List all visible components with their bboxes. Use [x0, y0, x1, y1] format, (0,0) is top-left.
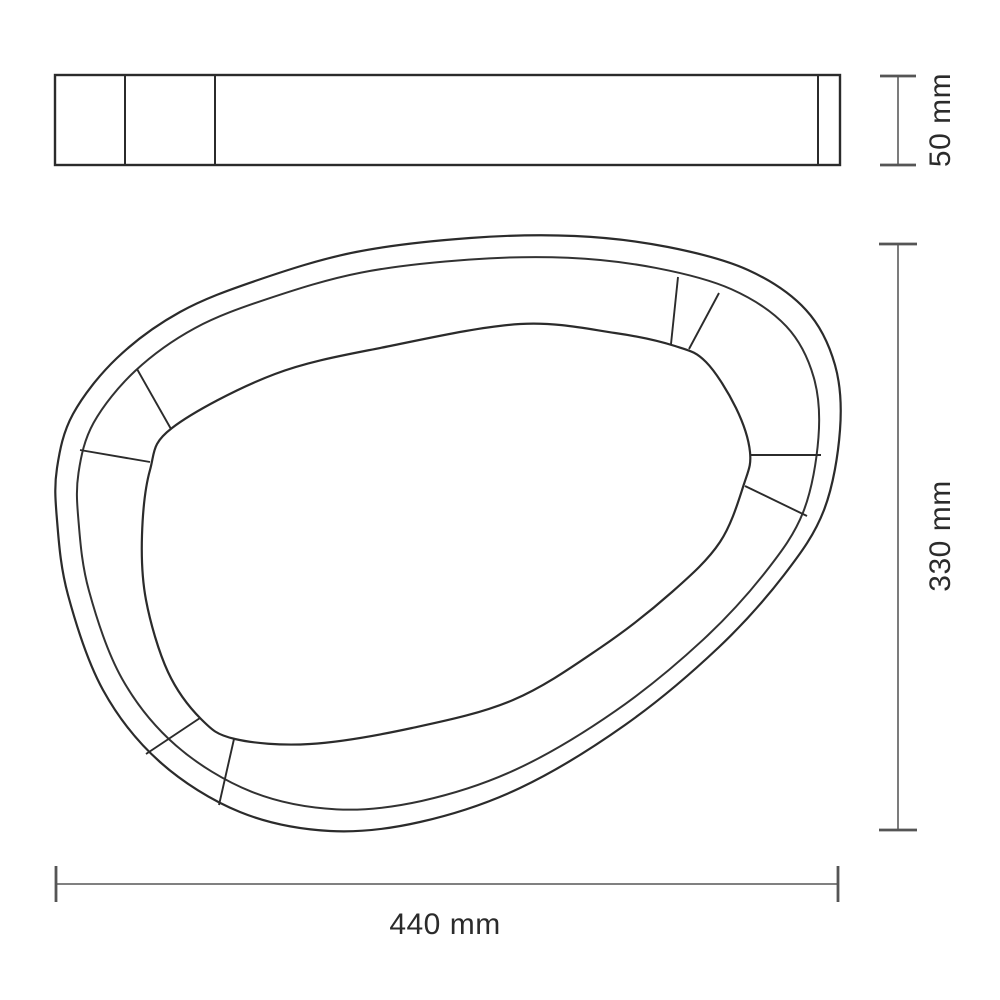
technical-drawing-page: 50 mm 330 mm 440 mm: [0, 0, 1000, 1000]
plan-segment-divider: [745, 486, 807, 516]
plan-segment-divider: [219, 739, 234, 805]
side-view-outline: [55, 75, 840, 165]
plan-segment-divider: [689, 293, 719, 349]
dimension-label-height: 330 mm: [926, 480, 956, 591]
plan-inner-opening-contour: [142, 324, 751, 745]
plan-segment-divider: [137, 369, 171, 429]
dimension-label-depth: 50 mm: [926, 73, 956, 167]
dimension-label-width: 440 mm: [389, 910, 500, 940]
plan-segment-divider: [80, 450, 150, 462]
drawing-canvas: [0, 0, 1000, 1000]
plan-segment-divider: [671, 277, 678, 344]
